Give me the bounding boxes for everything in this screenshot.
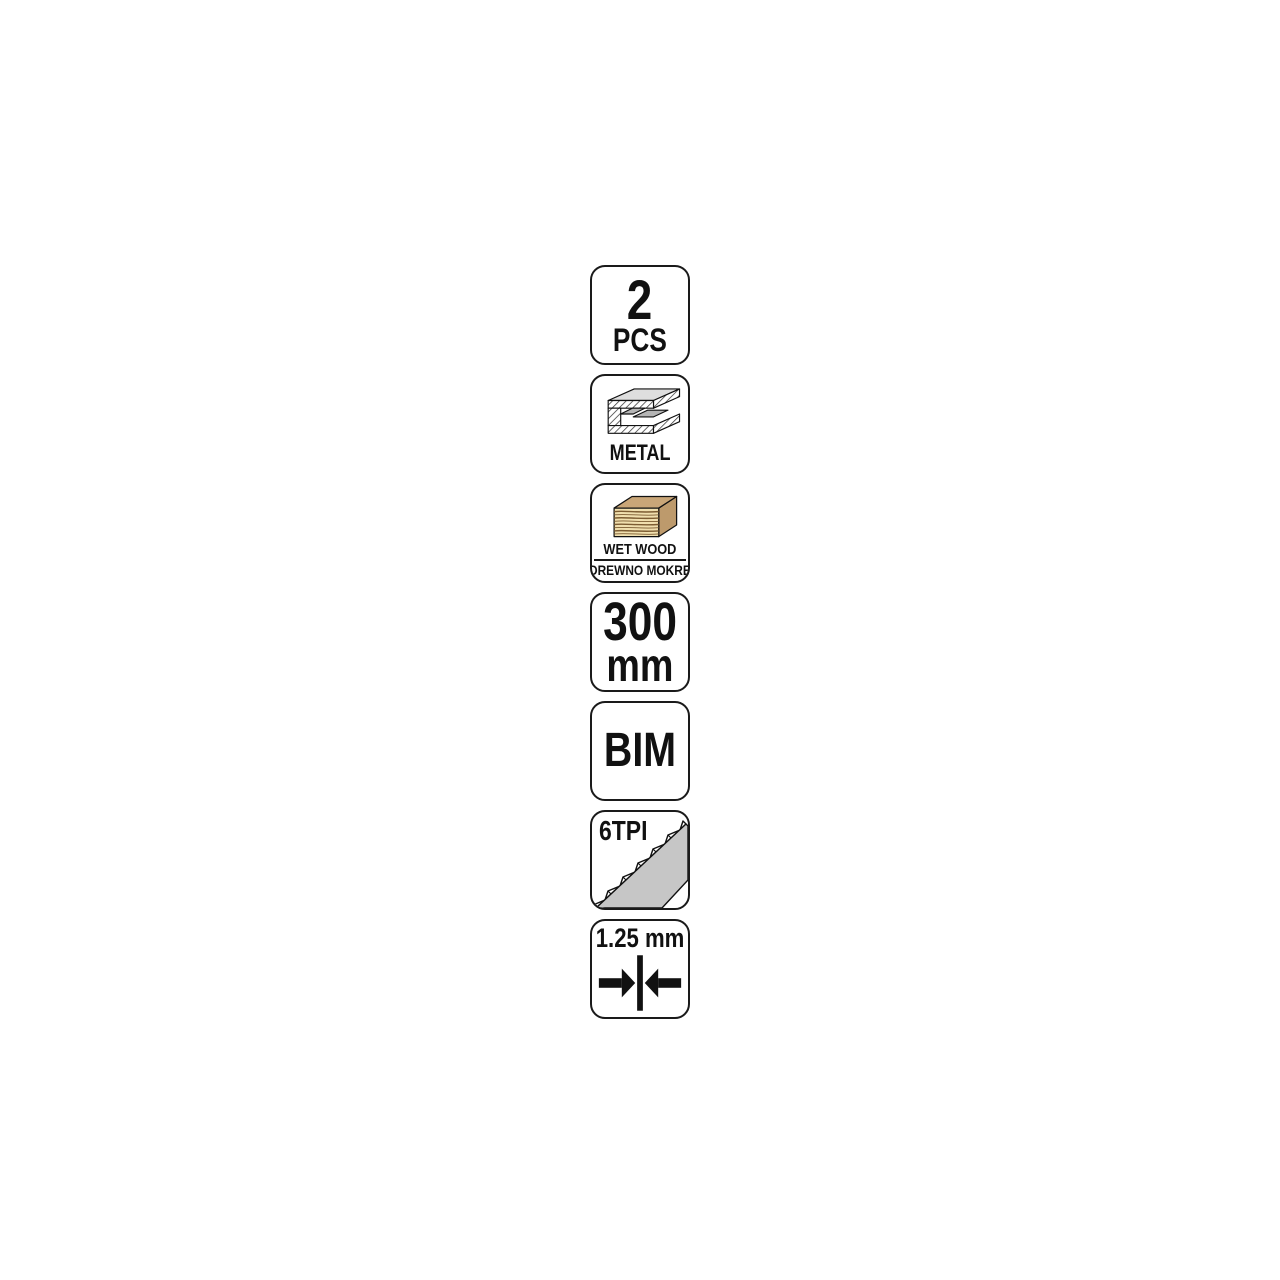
bimetal-label: BIM [604,727,676,775]
tpi-label: 6TPI [599,816,647,846]
feature-badge-column: 2 PCS METAL [590,265,690,1019]
blade-thickness-icon [596,954,684,1012]
quantity-value: 2 [627,275,653,325]
wet-wood-divider [594,559,686,561]
badge-bimetal: BIM [590,701,690,801]
thickness-label: 1.25 mm [596,925,685,952]
badge-length: 300 mm [590,592,690,692]
metal-profile-icon [597,387,683,441]
badge-quantity: 2 PCS [590,265,690,365]
badge-blade-thickness: 1.25 mm [590,919,690,1019]
badge-teeth-per-inch: 6TPI [590,810,690,910]
metal-label: METAL [610,441,671,465]
wet-wood-label-en: WET WOOD [604,542,677,557]
badge-material-wet-wood: WET WOOD DREWNO MOKRE [590,483,690,583]
badge-material-metal: METAL [590,374,690,474]
wet-wood-label-pl: DREWNO MOKRE [590,563,690,577]
wood-beam-icon [597,492,683,542]
quantity-unit: PCS [613,325,667,355]
length-unit: mm [606,645,673,685]
